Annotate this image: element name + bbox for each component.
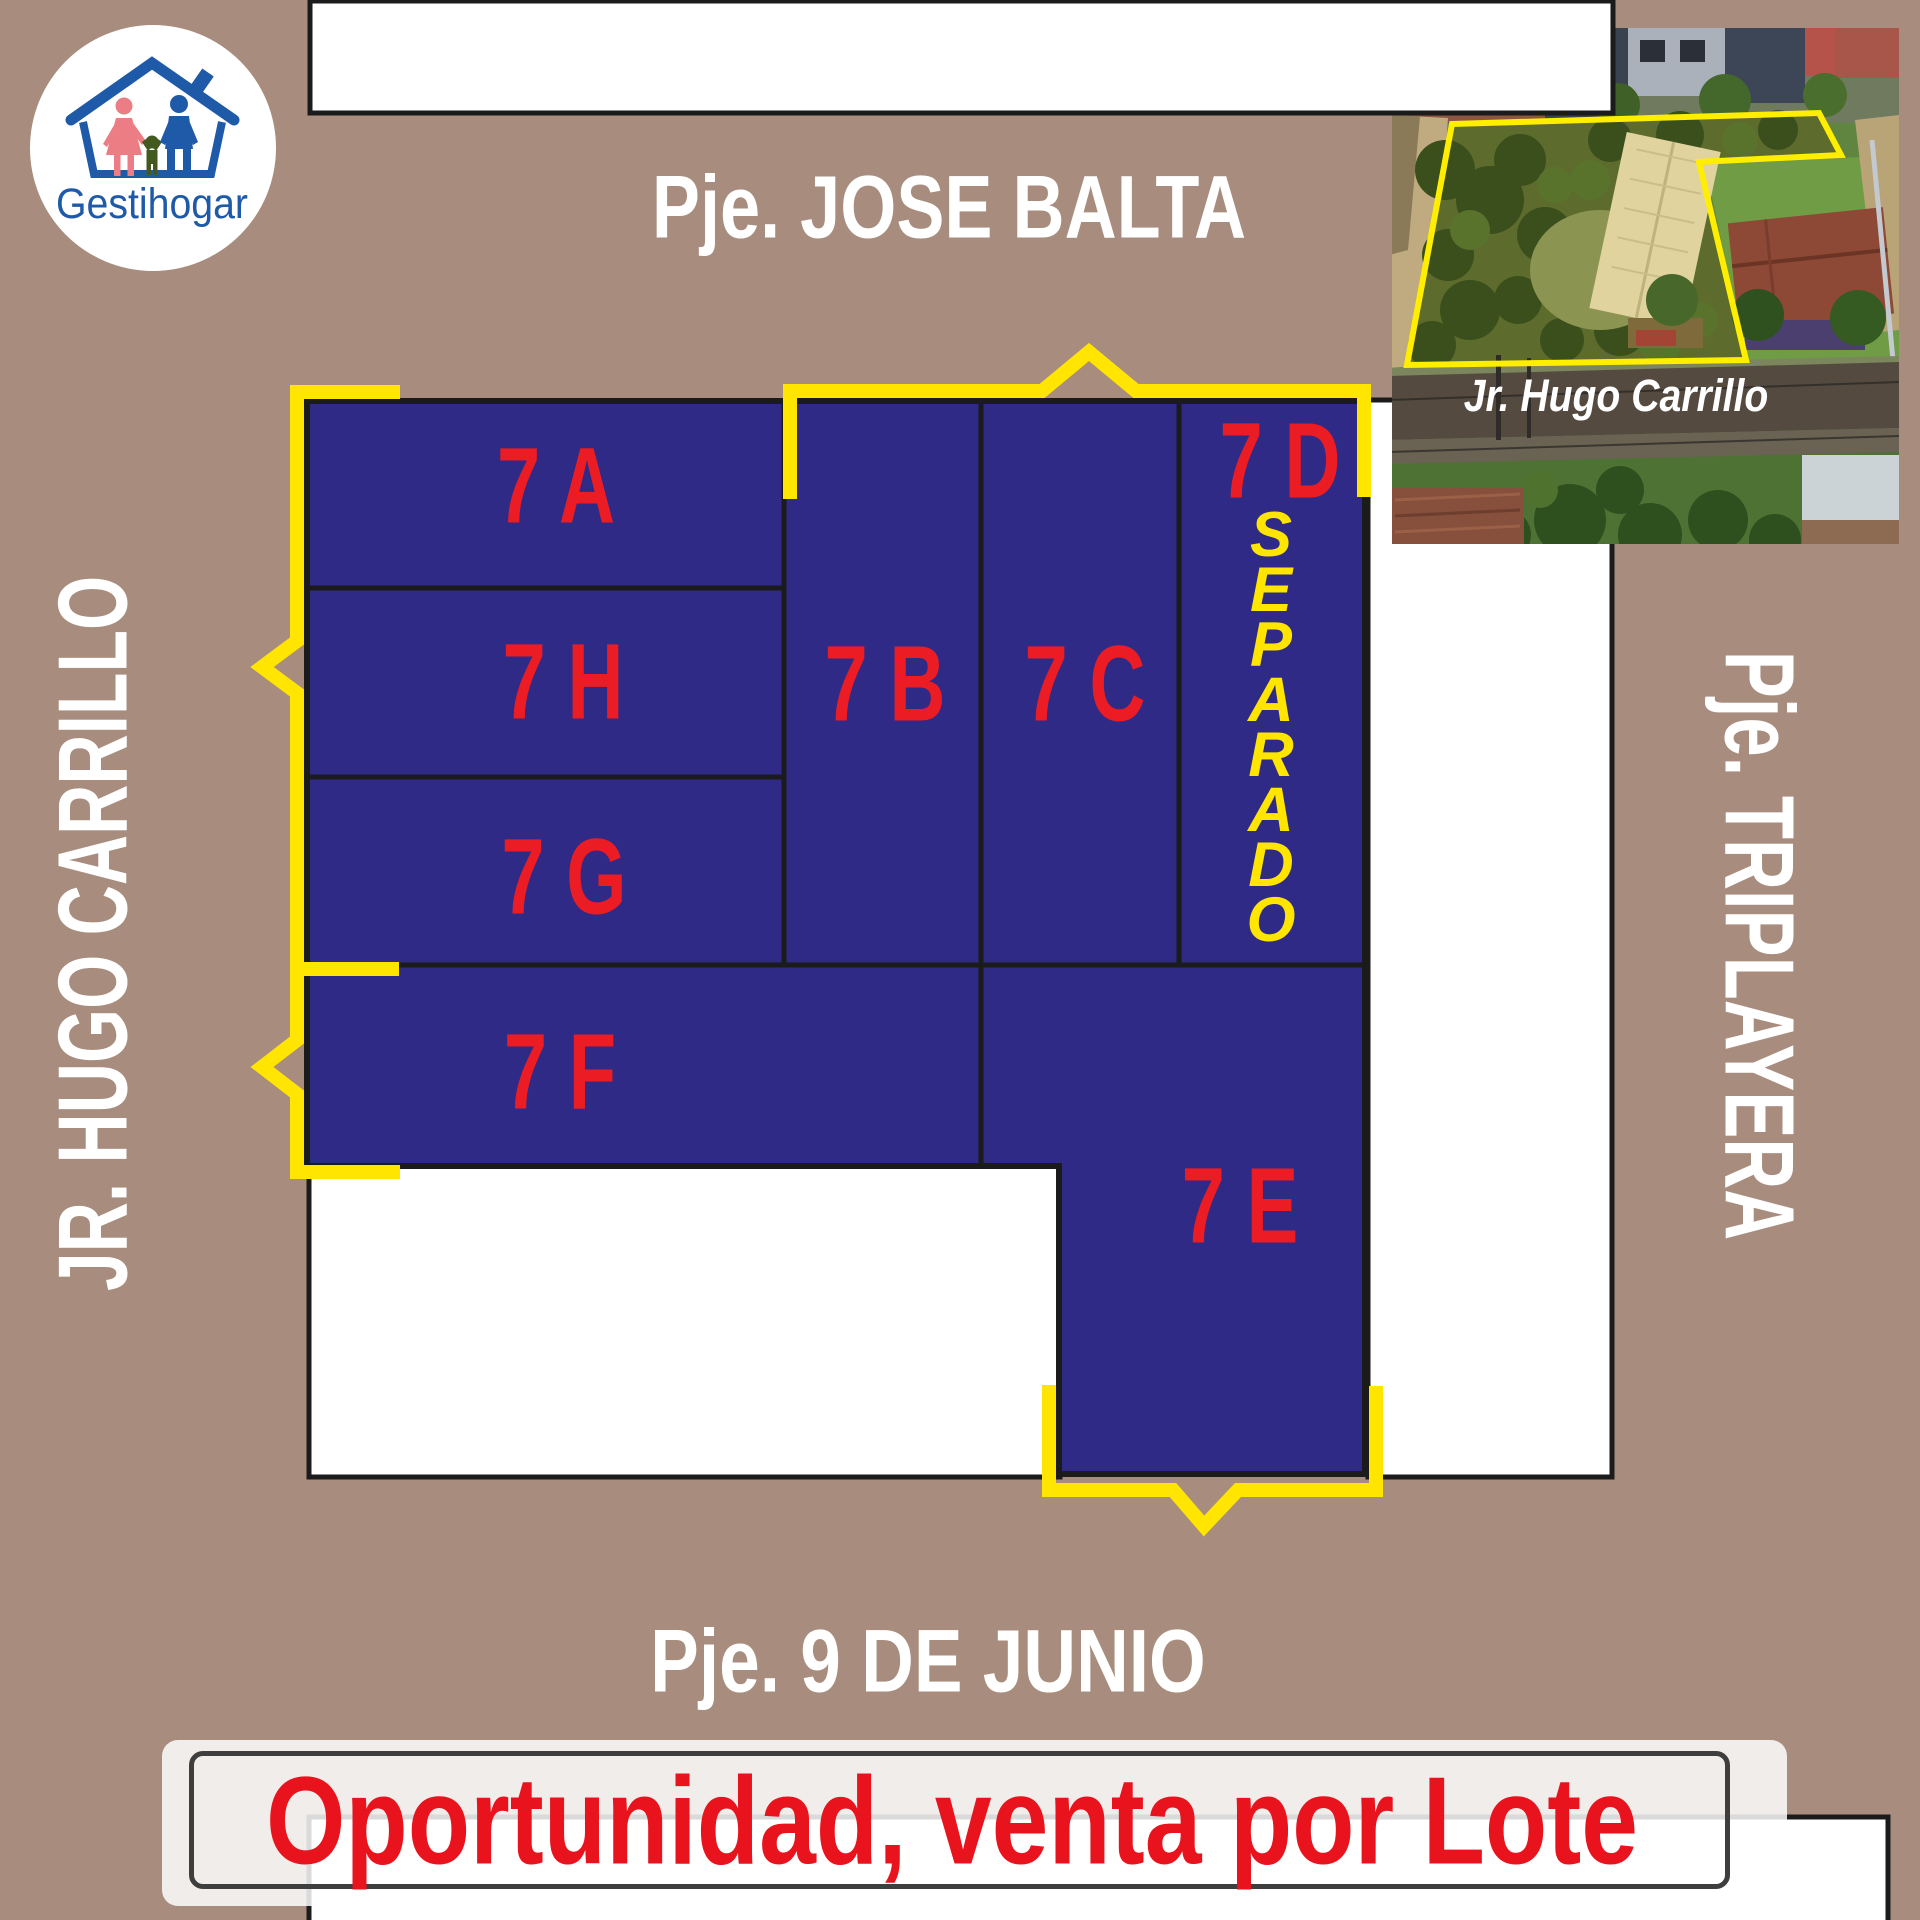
svg-text:Gestihogar: Gestihogar [56,180,248,228]
